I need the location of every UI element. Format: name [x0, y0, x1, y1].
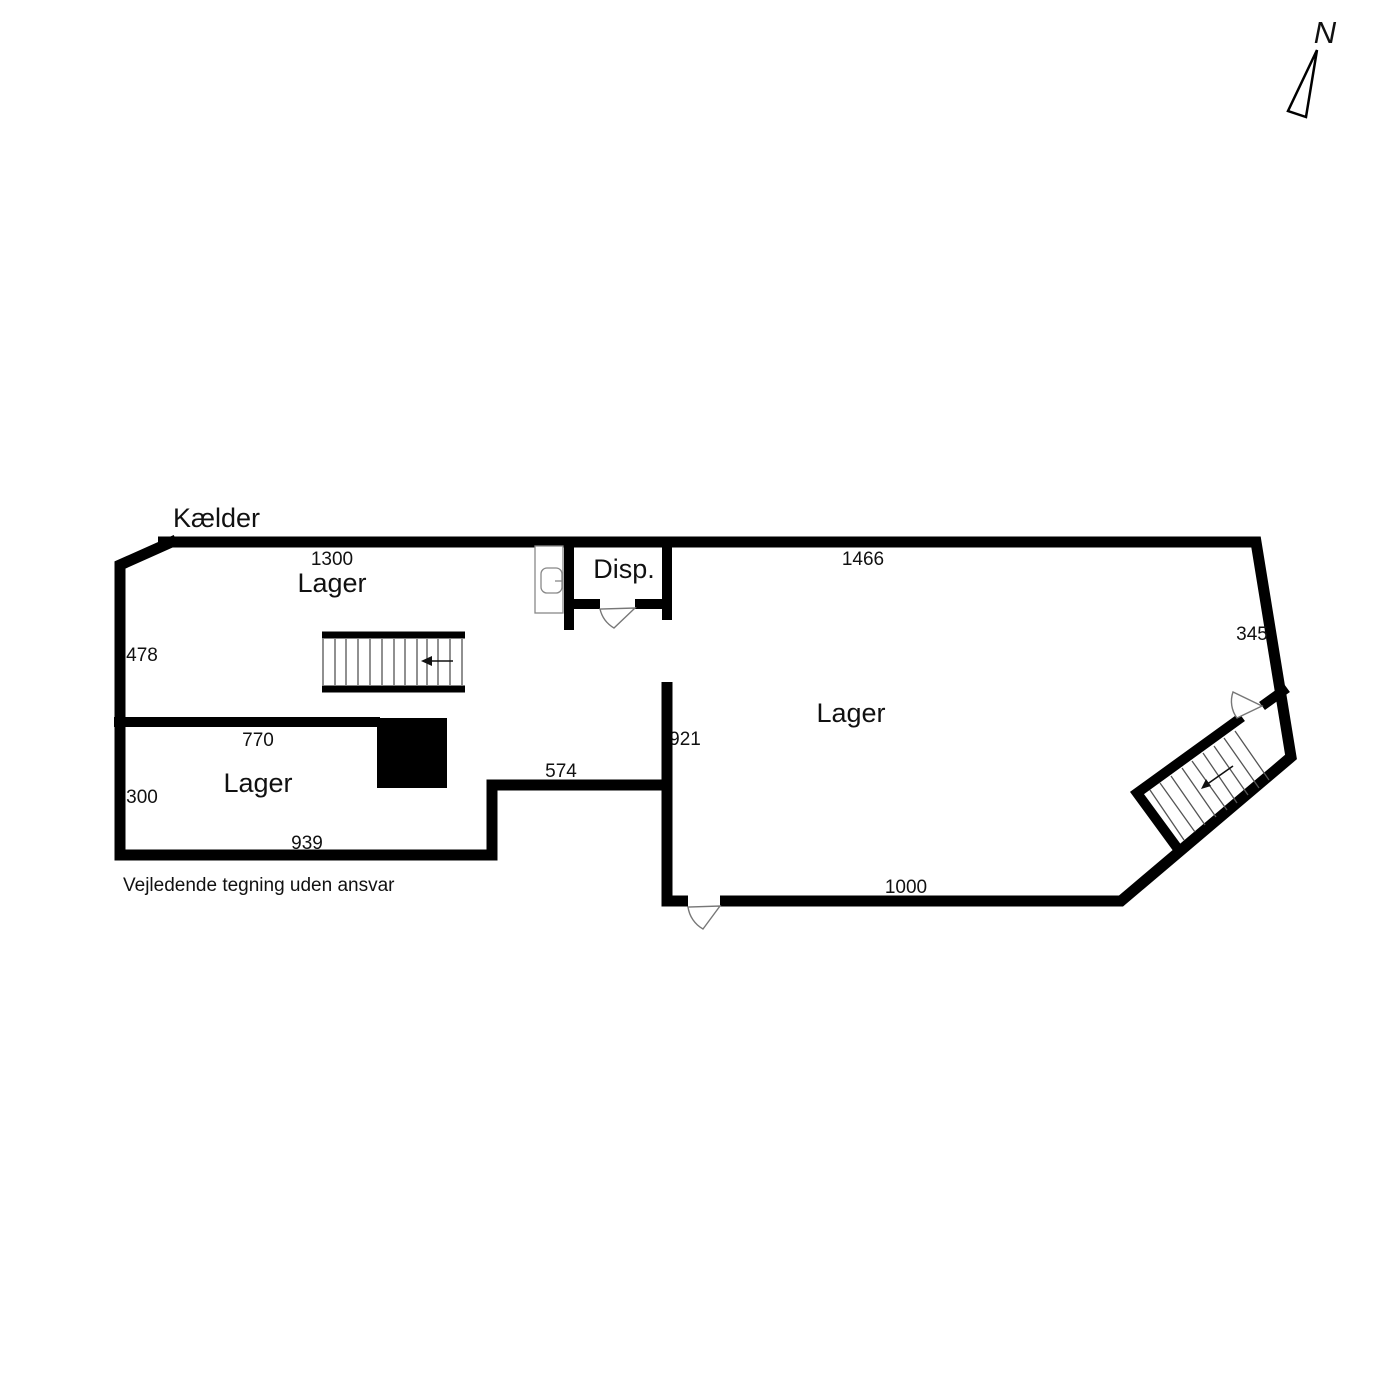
room-label-lager-top: Lager	[297, 568, 366, 598]
dim-passage-width: 574	[545, 761, 577, 782]
dim-left-height: 478	[126, 645, 158, 666]
floor-title: Kælder	[173, 503, 260, 533]
dim-left-room-top-width: 770	[242, 730, 274, 751]
disclaimer-text: Vejledende tegning uden ansvar	[123, 875, 395, 896]
dim-right-height: 345	[1236, 624, 1268, 645]
dim-top-left-width: 1300	[311, 549, 353, 570]
toilet-fixture	[535, 546, 563, 613]
north-label: N	[1314, 15, 1337, 50]
dim-left-room-bottom-width: 939	[291, 833, 323, 854]
room-label-lager-left: Lager	[223, 768, 292, 798]
dim-top-right-width: 1466	[842, 549, 884, 570]
dim-left-room-height: 300	[126, 787, 158, 808]
room-label-disp: Disp.	[593, 554, 655, 584]
canvas-background	[0, 0, 1400, 1400]
chimney-block	[377, 718, 447, 788]
dim-middle-height: 921	[669, 729, 701, 750]
dim-bottom-right-width: 1000	[885, 877, 927, 898]
floor-plan-page: N Kælder 921	[0, 0, 1400, 1400]
floor-plan: N Kælder 921	[0, 0, 1400, 1400]
room-label-lager-right: Lager	[816, 698, 885, 728]
